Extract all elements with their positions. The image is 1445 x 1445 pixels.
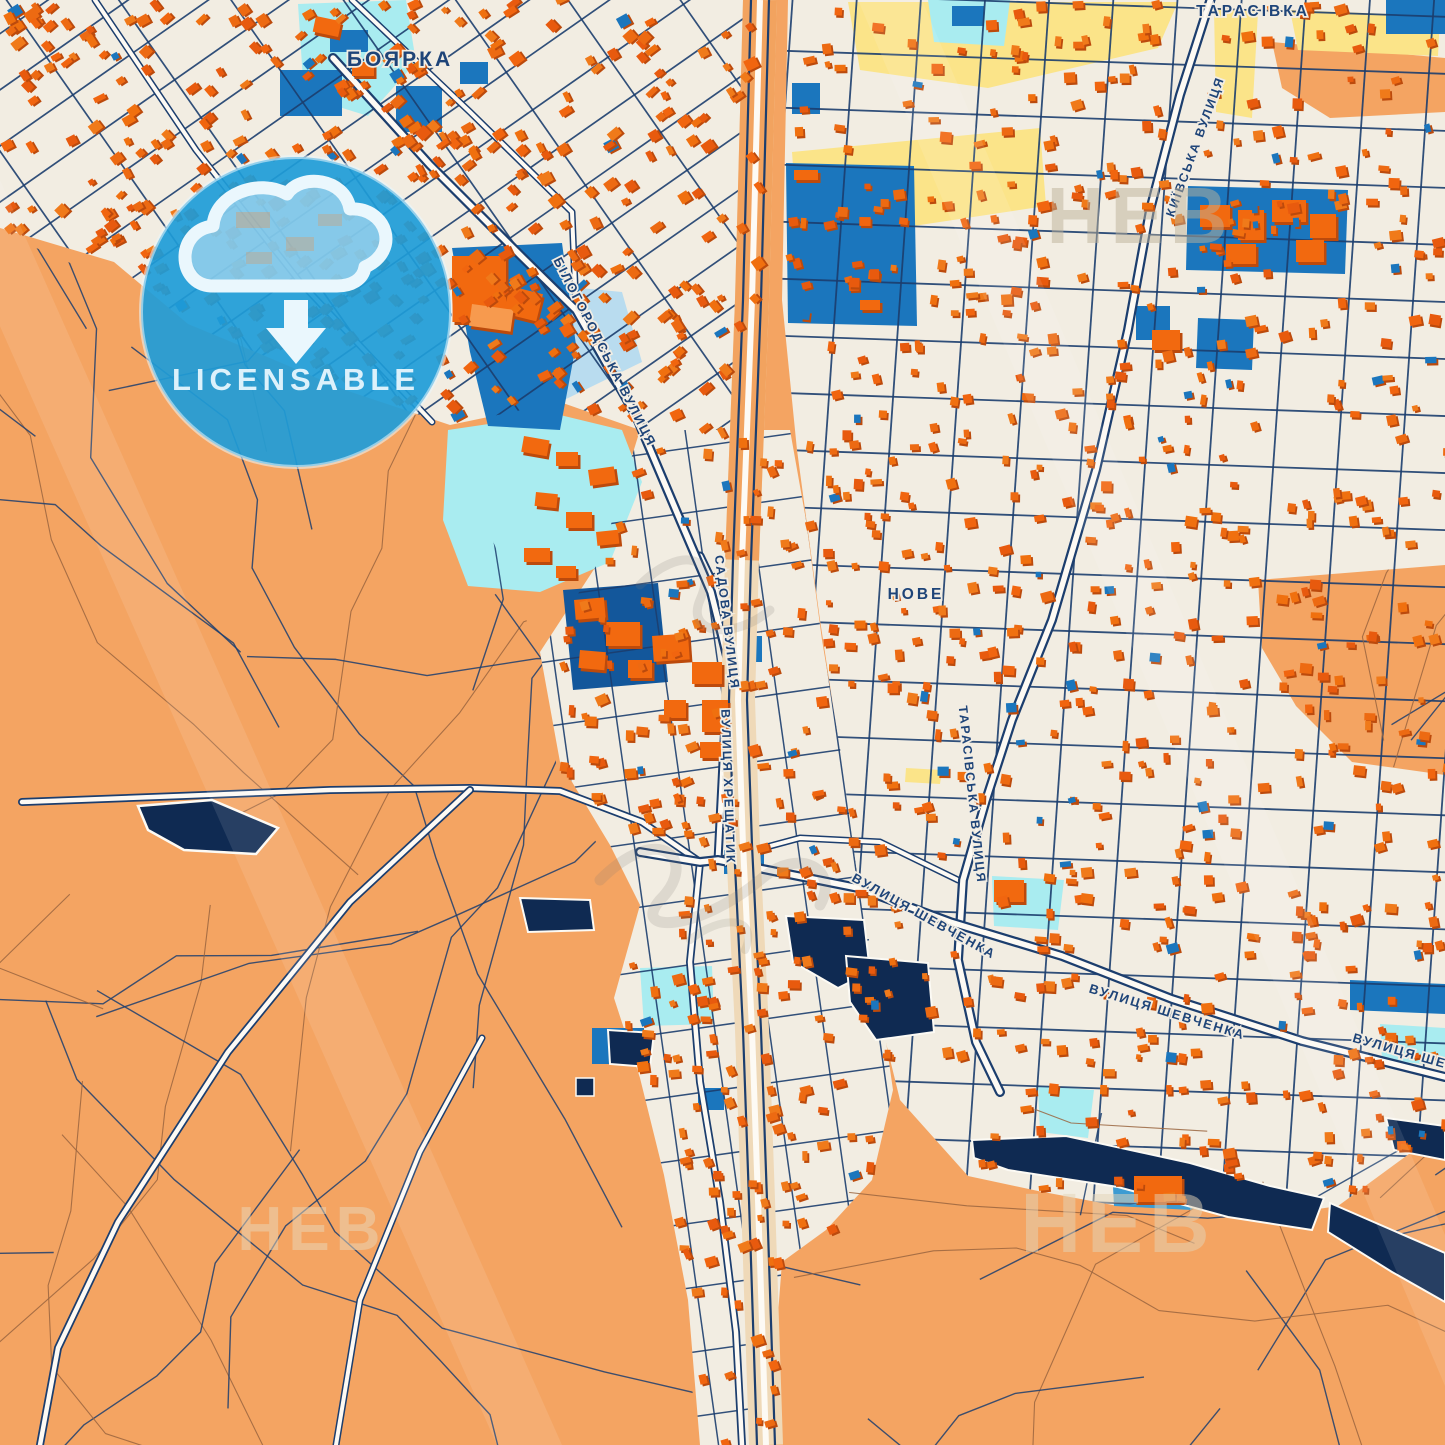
licensable-badge: LICENSABLE	[131, 147, 461, 477]
lake	[520, 898, 594, 932]
heb-watermark-topright: HEB	[1047, 171, 1234, 260]
place-label-nove: НОВЕ	[888, 586, 945, 603]
industrial-blue	[786, 163, 917, 326]
map-print-image: БОЯРКАТАРАСІВКАНОВЕБІЛОГОРОДСЬКА ВУЛИЦЯС…	[0, 0, 1445, 1445]
place-label-boyarka: БОЯРКА	[347, 48, 453, 71]
heb-watermark-bottomleft: HEB	[238, 1195, 387, 1264]
heb-watermark-bottomright: HEB	[1020, 1176, 1215, 1270]
yellow-zone	[905, 768, 942, 784]
pond-blue	[460, 62, 488, 84]
place-label-tarasivka: ТАРАСІВКА	[1196, 3, 1310, 20]
badge-label: LICENSABLE	[172, 362, 420, 397]
pond-blue	[952, 6, 984, 26]
pond-lightblue	[1038, 1086, 1094, 1138]
pond	[576, 1078, 594, 1096]
